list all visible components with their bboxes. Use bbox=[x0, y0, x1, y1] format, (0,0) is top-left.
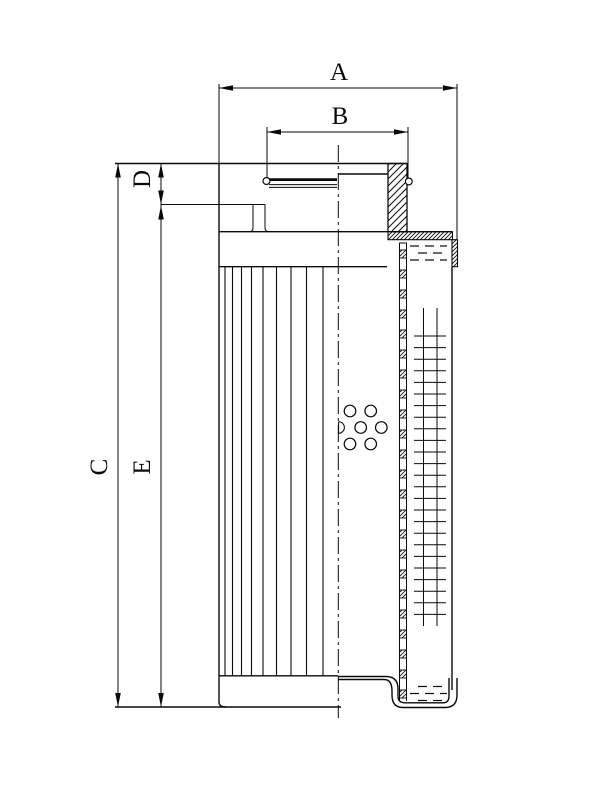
filter-element-dimension-drawing: A B C D E bbox=[0, 0, 612, 792]
arrowhead bbox=[115, 693, 121, 707]
arrowhead bbox=[219, 85, 233, 91]
dim-label-d: D bbox=[129, 170, 156, 188]
dim-label-a: A bbox=[330, 59, 348, 86]
handle-end bbox=[263, 178, 270, 185]
core-tube-perforations bbox=[400, 250, 407, 698]
arrowhead bbox=[394, 129, 408, 135]
dim-label-e: E bbox=[129, 459, 156, 474]
dim-label-b: B bbox=[332, 103, 349, 130]
hole-cluster bbox=[339, 405, 388, 450]
dimension-d: D bbox=[129, 164, 265, 708]
arrowhead bbox=[158, 693, 164, 707]
inner-spigot bbox=[249, 205, 270, 232]
bottom-cap bbox=[338, 677, 457, 708]
mesh-rungs bbox=[414, 336, 446, 614]
section-hatching bbox=[388, 164, 458, 267]
dimension-e: E bbox=[129, 206, 164, 708]
arrowhead bbox=[443, 85, 457, 91]
arrowhead bbox=[267, 129, 281, 135]
arrowhead bbox=[158, 191, 164, 205]
glue-dashes bbox=[410, 246, 447, 701]
arrowhead bbox=[115, 164, 121, 178]
o-ring-seal bbox=[405, 178, 412, 185]
core-tube bbox=[400, 243, 407, 701]
dimension-b: B bbox=[267, 103, 408, 178]
arrowhead bbox=[158, 206, 164, 220]
drawing-page: A B C D E bbox=[0, 0, 612, 792]
arrowhead bbox=[158, 164, 164, 178]
half-hole bbox=[339, 422, 345, 434]
dimension-c: C bbox=[86, 164, 121, 708]
top-cap-handle bbox=[263, 178, 337, 188]
mesh-grid bbox=[414, 308, 446, 626]
pleats bbox=[225, 267, 323, 676]
dim-label-c: C bbox=[86, 459, 113, 476]
